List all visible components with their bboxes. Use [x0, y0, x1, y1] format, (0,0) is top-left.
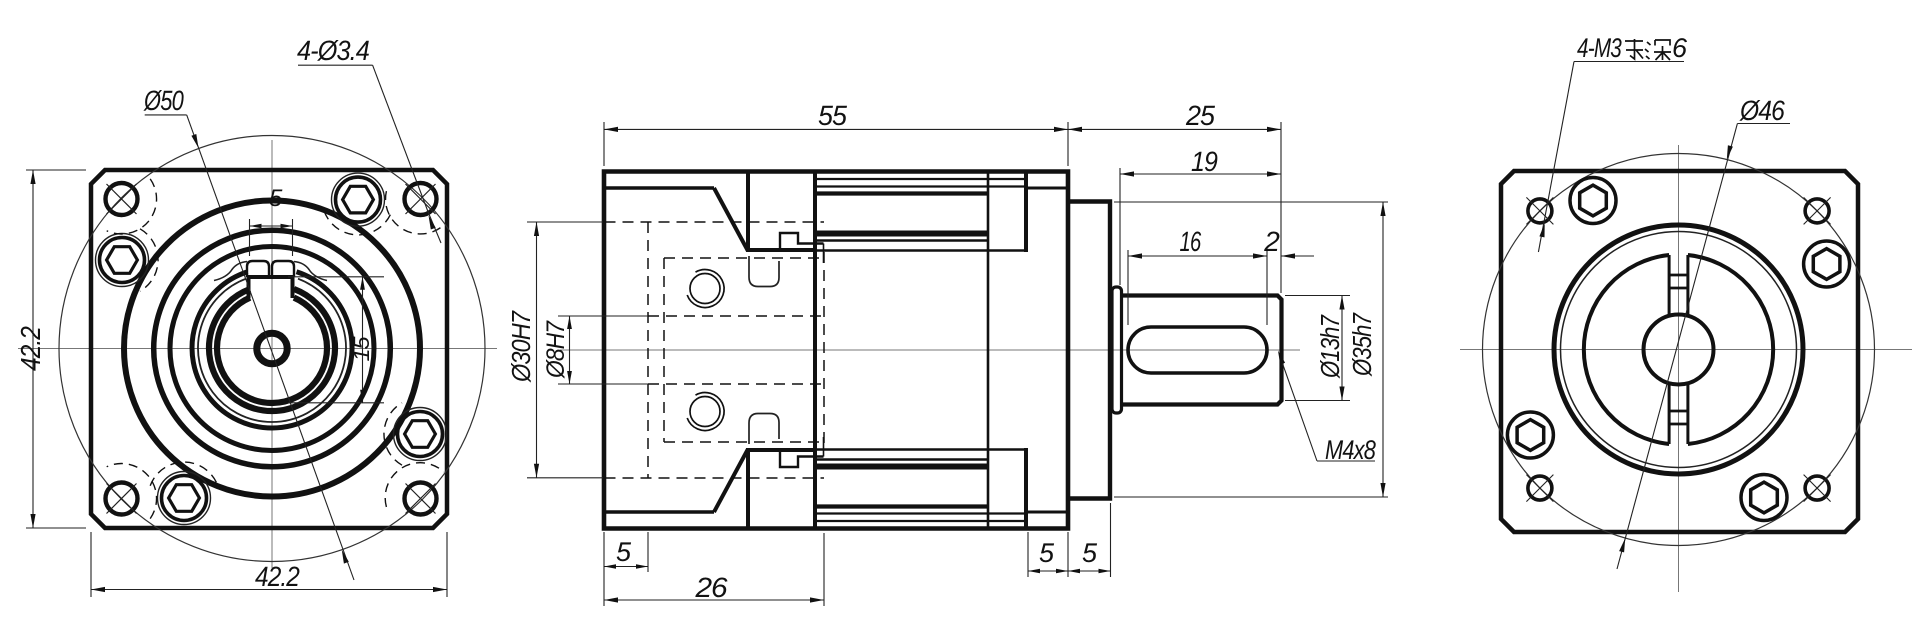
svg-text:55: 55 — [818, 100, 847, 131]
svg-text:16: 16 — [1179, 226, 1201, 257]
svg-text:Ø46: Ø46 — [1739, 95, 1785, 126]
svg-text:5: 5 — [269, 185, 283, 212]
svg-text:Ø8H7: Ø8H7 — [542, 320, 570, 379]
svg-text:19: 19 — [1191, 146, 1217, 177]
svg-text:Ø13h7: Ø13h7 — [1315, 314, 1345, 379]
svg-text:Ø30H7: Ø30H7 — [506, 310, 536, 383]
svg-text:5: 5 — [616, 537, 632, 567]
svg-text:M4x8: M4x8 — [1325, 435, 1376, 465]
svg-text:15: 15 — [349, 336, 374, 362]
svg-text:26: 26 — [694, 572, 728, 603]
svg-text:5: 5 — [1039, 538, 1055, 568]
svg-text:2: 2 — [1263, 226, 1280, 257]
svg-text:Ø50: Ø50 — [143, 85, 184, 116]
svg-text:42.2: 42.2 — [15, 326, 46, 371]
svg-text:5: 5 — [1082, 538, 1098, 568]
svg-text:4-Ø3.4: 4-Ø3.4 — [297, 35, 369, 66]
svg-text:Ø35h7: Ø35h7 — [1347, 312, 1377, 377]
svg-text:4-M3: 4-M3 — [1577, 33, 1622, 63]
svg-text:42.2: 42.2 — [255, 561, 300, 592]
svg-text:25: 25 — [1185, 100, 1215, 131]
svg-text:6: 6 — [1672, 33, 1688, 63]
